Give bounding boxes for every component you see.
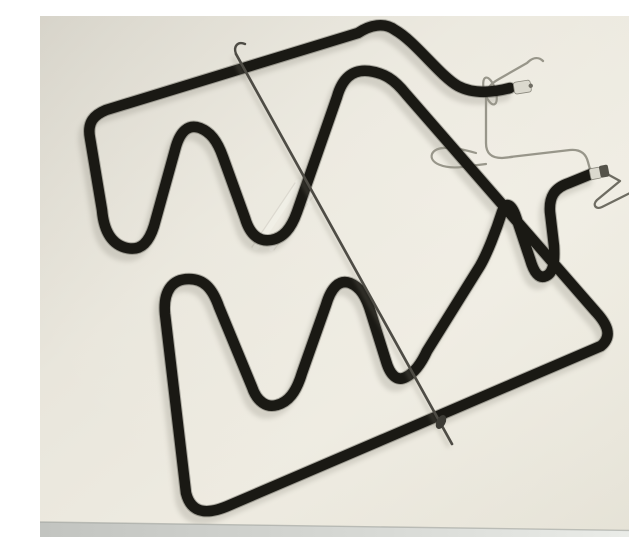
product-photo [40,16,629,537]
terminal-tip-upper [513,80,532,95]
heating-element-photo [40,16,629,537]
